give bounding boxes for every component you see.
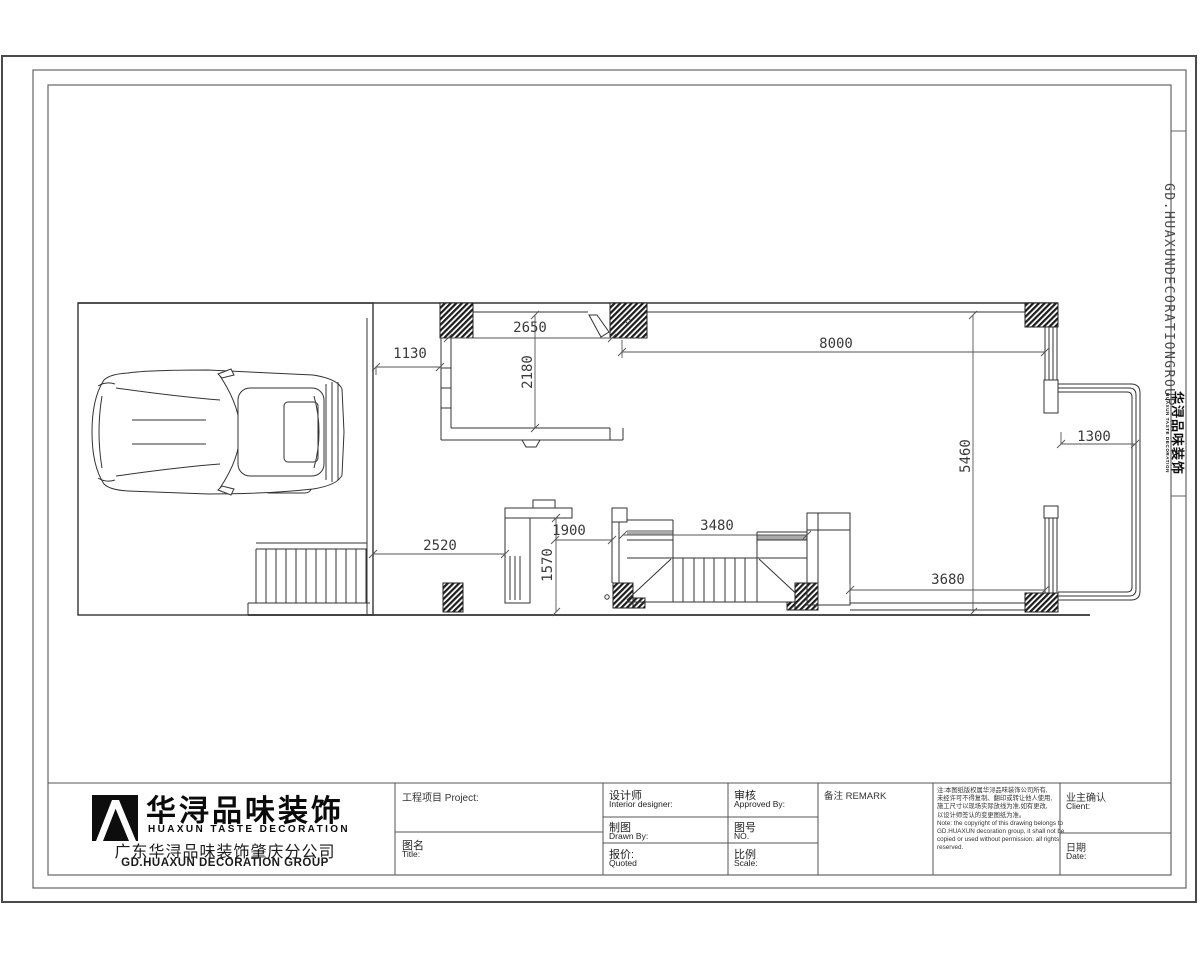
titleblock-branch-en: GD.HUAXUN DECORATION GROUP [60,857,390,869]
field-date-en: Date: [1066,851,1086,861]
dim-label-1130: 1130 [375,346,445,362]
side-logo-cn: 华浔品味装饰 [1170,383,1184,483]
field-quoted-en: Quoted [609,858,637,868]
car-top-view [92,369,344,495]
disclaimer-line: GD.HUAXUN decoration group, it shall not… [937,828,1064,836]
field-scale-en: Scale: [734,858,758,868]
field-remark: 备注 REMARK [824,788,886,802]
dim-label-2180: 2180 [520,337,536,407]
dim-label-5460: 5460 [958,421,974,491]
field-no-en: NO. [734,831,749,841]
dim-label-1300: 1300 [1059,429,1129,445]
cad-sheet: 2650 1130 2180 8000 5460 1300 2520 1900 … [0,0,1200,960]
dim-label-1570: 1570 [540,530,556,600]
field-project: 工程项目 Project: [402,789,479,804]
dim-label-3480: 3480 [682,518,752,534]
side-logo: 华浔品味装饰 HUAXUN TASTE DECORATION [1156,383,1184,483]
dim-label-3680: 3680 [913,572,983,588]
disclaimer-line: Note: the copyright of this drawing belo… [937,820,1064,828]
field-client-en: Client: [1066,801,1090,811]
disclaimer-line: 注:本图纸版权属华浔品味装饰公司所有, [937,787,1064,795]
disclaimer-line: 施工尺寸以现场实际放线为准,如有更改, [937,803,1064,811]
field-designer-en: Interior designer: [609,799,673,809]
field-drawn-en: Drawn By: [609,831,648,841]
dim-label-2520: 2520 [405,538,475,554]
disclaimer-line: reserved. [937,844,1064,852]
company-logo-mark [92,795,138,841]
dim-label-8000: 8000 [801,336,871,352]
disclaimer-line: copied or used without permission. all r… [937,836,1064,844]
dim-label-2650: 2650 [495,320,565,336]
field-title-en: Title: [402,849,420,859]
disclaimer-line: 以设计师签认的变更图纸为准。 [937,812,1064,820]
titleblock-logo-en: HUAXUN TASTE DECORATION [148,824,350,835]
dimension-lines [369,311,1139,616]
field-approved-en: Approved By: [734,799,785,809]
side-logo-en: HUAXUN TASTE DECORATION [1164,383,1170,483]
